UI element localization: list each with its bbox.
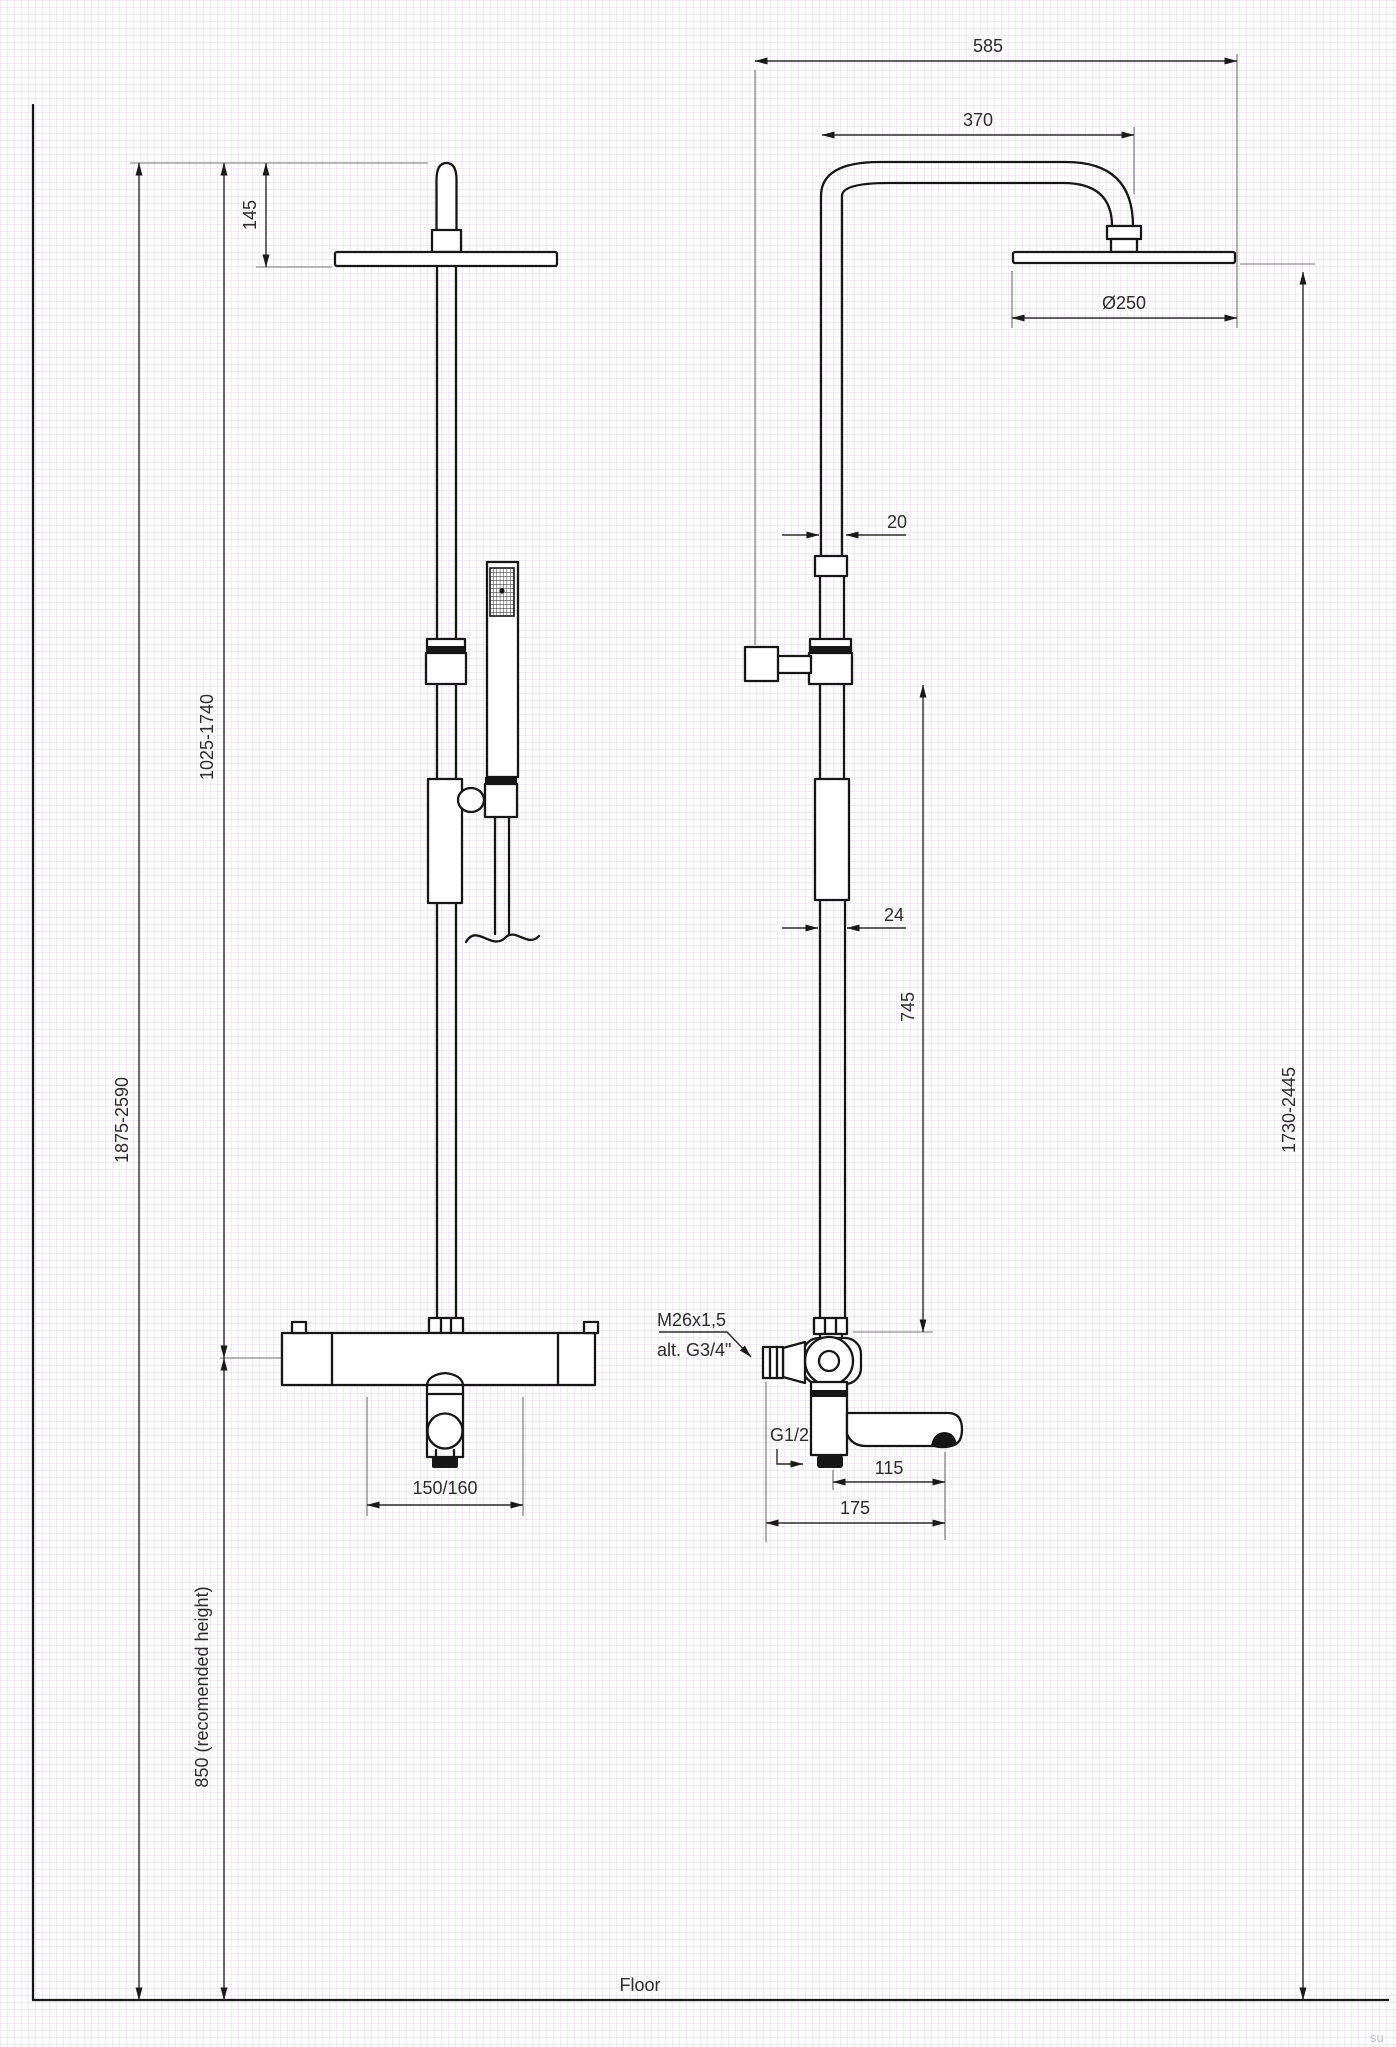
mixer-screw-left bbox=[292, 1322, 306, 1333]
pipe-joint-collar bbox=[815, 556, 847, 576]
dim-label-115: 115 bbox=[875, 1458, 904, 1478]
rain-head-side bbox=[1013, 252, 1235, 263]
dim-label-585: 585 bbox=[973, 36, 1003, 56]
riser-pipe-side bbox=[820, 576, 845, 1318]
front-view bbox=[130, 163, 598, 1468]
slide-rail-side bbox=[815, 779, 849, 900]
diverter-knob bbox=[428, 1414, 463, 1449]
mixer-side bbox=[763, 1318, 962, 1468]
dim-label-145: 145 bbox=[240, 200, 260, 230]
head-collar-side bbox=[1107, 226, 1141, 239]
g12-leader-line bbox=[777, 1449, 803, 1464]
hand-shower bbox=[485, 562, 518, 817]
side-view bbox=[745, 162, 1235, 1468]
mixer-screw-right bbox=[584, 1322, 598, 1333]
slider-knob bbox=[458, 788, 484, 812]
hose-break-line bbox=[466, 935, 539, 942]
dim-label-24: 24 bbox=[884, 905, 904, 925]
frame bbox=[33, 105, 1388, 2000]
note-g12: G1/2 bbox=[770, 1425, 809, 1445]
dim-label-850: 850 (recomended height) bbox=[192, 1586, 212, 1787]
dim-label-1875-2590: 1875-2590 bbox=[112, 1077, 132, 1163]
connection-nut-front bbox=[429, 1318, 463, 1333]
slide-rail-front bbox=[428, 779, 462, 903]
watermark-text: su bbox=[1370, 2030, 1384, 2045]
bracket-wall-plate bbox=[745, 647, 778, 681]
outlet-cap-side bbox=[817, 1455, 843, 1468]
spray-face-center bbox=[499, 588, 504, 593]
technical-drawing-page: 145 1025-1740 1875-2590 850 (recomended … bbox=[0, 0, 1396, 2047]
head-collar-front bbox=[432, 230, 461, 252]
connection-nut-side bbox=[814, 1318, 847, 1334]
outlet-cap-front bbox=[432, 1457, 458, 1468]
rain-head-front bbox=[335, 252, 557, 266]
dim-label-20: 20 bbox=[887, 512, 907, 532]
dim-label-1730-2445: 1730-2445 bbox=[1279, 1067, 1299, 1153]
inlet-cone bbox=[783, 1342, 805, 1383]
dimensions-front: 145 1025-1740 1875-2590 850 (recomended … bbox=[112, 163, 523, 2000]
note-g34: alt. G3/4" bbox=[657, 1340, 731, 1360]
mixer-front bbox=[220, 1318, 598, 1468]
head-stub-side bbox=[1111, 239, 1137, 252]
shower-arm-inner bbox=[842, 183, 1112, 556]
wall-bracket-side bbox=[745, 639, 852, 684]
floor-label: Floor bbox=[619, 1975, 660, 1995]
note-m26: M26x1,5 bbox=[657, 1310, 726, 1330]
shower-system-drawing: 145 1025-1740 1875-2590 850 (recomended … bbox=[0, 0, 1396, 2047]
dim-label-250: Ø250 bbox=[1102, 293, 1146, 313]
shower-arm-outer bbox=[821, 162, 1133, 556]
shower-hose bbox=[466, 817, 539, 942]
dim-label-745: 745 bbox=[898, 992, 918, 1022]
bracket-clamp-front bbox=[426, 639, 466, 684]
hand-shower-holder bbox=[485, 784, 517, 817]
thread-annotations: M26x1,5 alt. G3/4" G1/2 bbox=[657, 1310, 809, 1464]
dim-label-1025-1740: 1025-1740 bbox=[197, 694, 217, 780]
column-band bbox=[811, 1390, 847, 1397]
dimensions-side: 585 370 Ø250 20 24 745 1730-2445 115 175 bbox=[657, 36, 1315, 2000]
valve-center bbox=[819, 1351, 839, 1371]
bracket-stem bbox=[777, 656, 811, 673]
dim-label-370: 370 bbox=[963, 110, 993, 130]
dim-label-150-160: 150/160 bbox=[412, 1478, 477, 1498]
dim-label-175: 175 bbox=[840, 1498, 870, 1518]
inlet-flange bbox=[763, 1347, 783, 1378]
